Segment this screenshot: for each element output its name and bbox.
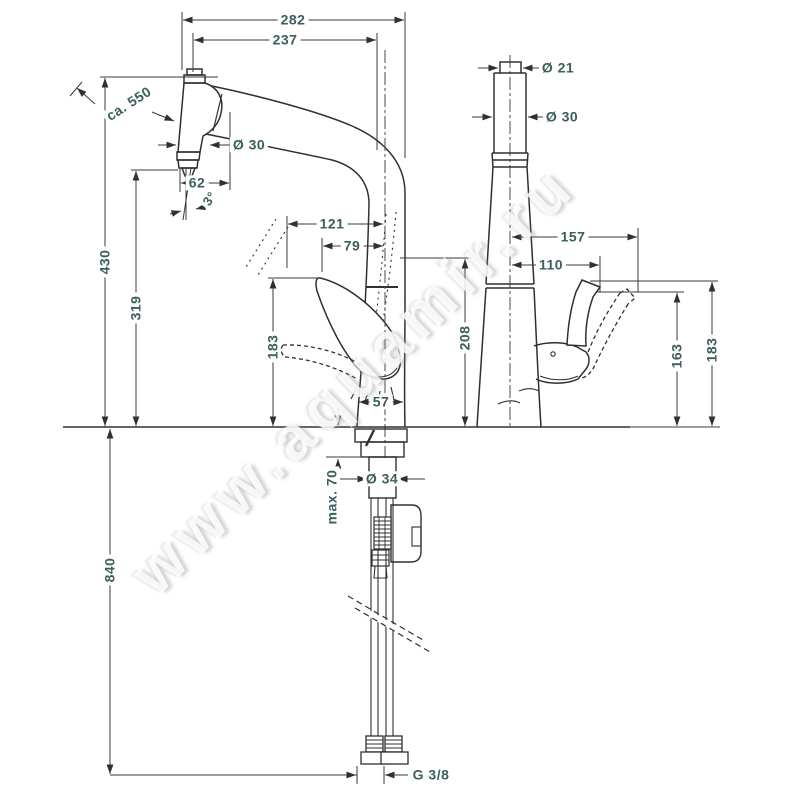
spray-head-cap: [187, 69, 202, 75]
dim-side-handle-open-reach: 157: [558, 229, 589, 244]
dim-side-handle-open-height: 183: [704, 335, 719, 366]
dim-side-handle-height: 163: [669, 341, 684, 372]
dim-side-handle-reach: 110: [536, 257, 566, 272]
dim-spout-reach: 237: [270, 32, 301, 47]
dim-base-width: 57: [370, 394, 393, 409]
dim-max-counter-thickness: max. 70: [324, 467, 339, 528]
dim-shank-diameter: Ø 34: [363, 471, 401, 486]
mounting-flange: [355, 429, 407, 442]
dim-handle-open-reach: 121: [317, 216, 348, 231]
dim-connection-thread: G 3/8: [410, 767, 453, 782]
dim-body-height: 208: [457, 323, 472, 354]
hose-connector-block: [391, 505, 421, 562]
dim-spray-diameter: Ø 30: [230, 137, 268, 152]
g38-nut: [381, 752, 408, 764]
dim-side-body-diameter: Ø 30: [543, 109, 581, 124]
dim-total-height: 430: [97, 247, 112, 278]
dim-side-top-diameter: Ø 21: [539, 60, 577, 75]
front-view-faucet: [177, 69, 405, 427]
side-body-left: [477, 288, 486, 427]
technical-drawing-page: 282 237 ca. 550 Ø 30 62 3° 430 319 121 7…: [0, 0, 800, 800]
spray-head: [178, 83, 222, 152]
dim-hose-length-below: 840: [102, 555, 117, 586]
dim-handle-reach: 79: [341, 238, 364, 253]
side-body-right: [534, 288, 541, 427]
dim-total-width: 282: [278, 12, 309, 27]
hose-end-fittings: [361, 736, 408, 764]
dim-spray-offset: 62: [186, 175, 209, 190]
dim-outlet-height: 319: [128, 293, 143, 324]
dim-handle-height-front: 183: [265, 332, 280, 363]
faucet-dimension-drawing: [0, 0, 800, 800]
